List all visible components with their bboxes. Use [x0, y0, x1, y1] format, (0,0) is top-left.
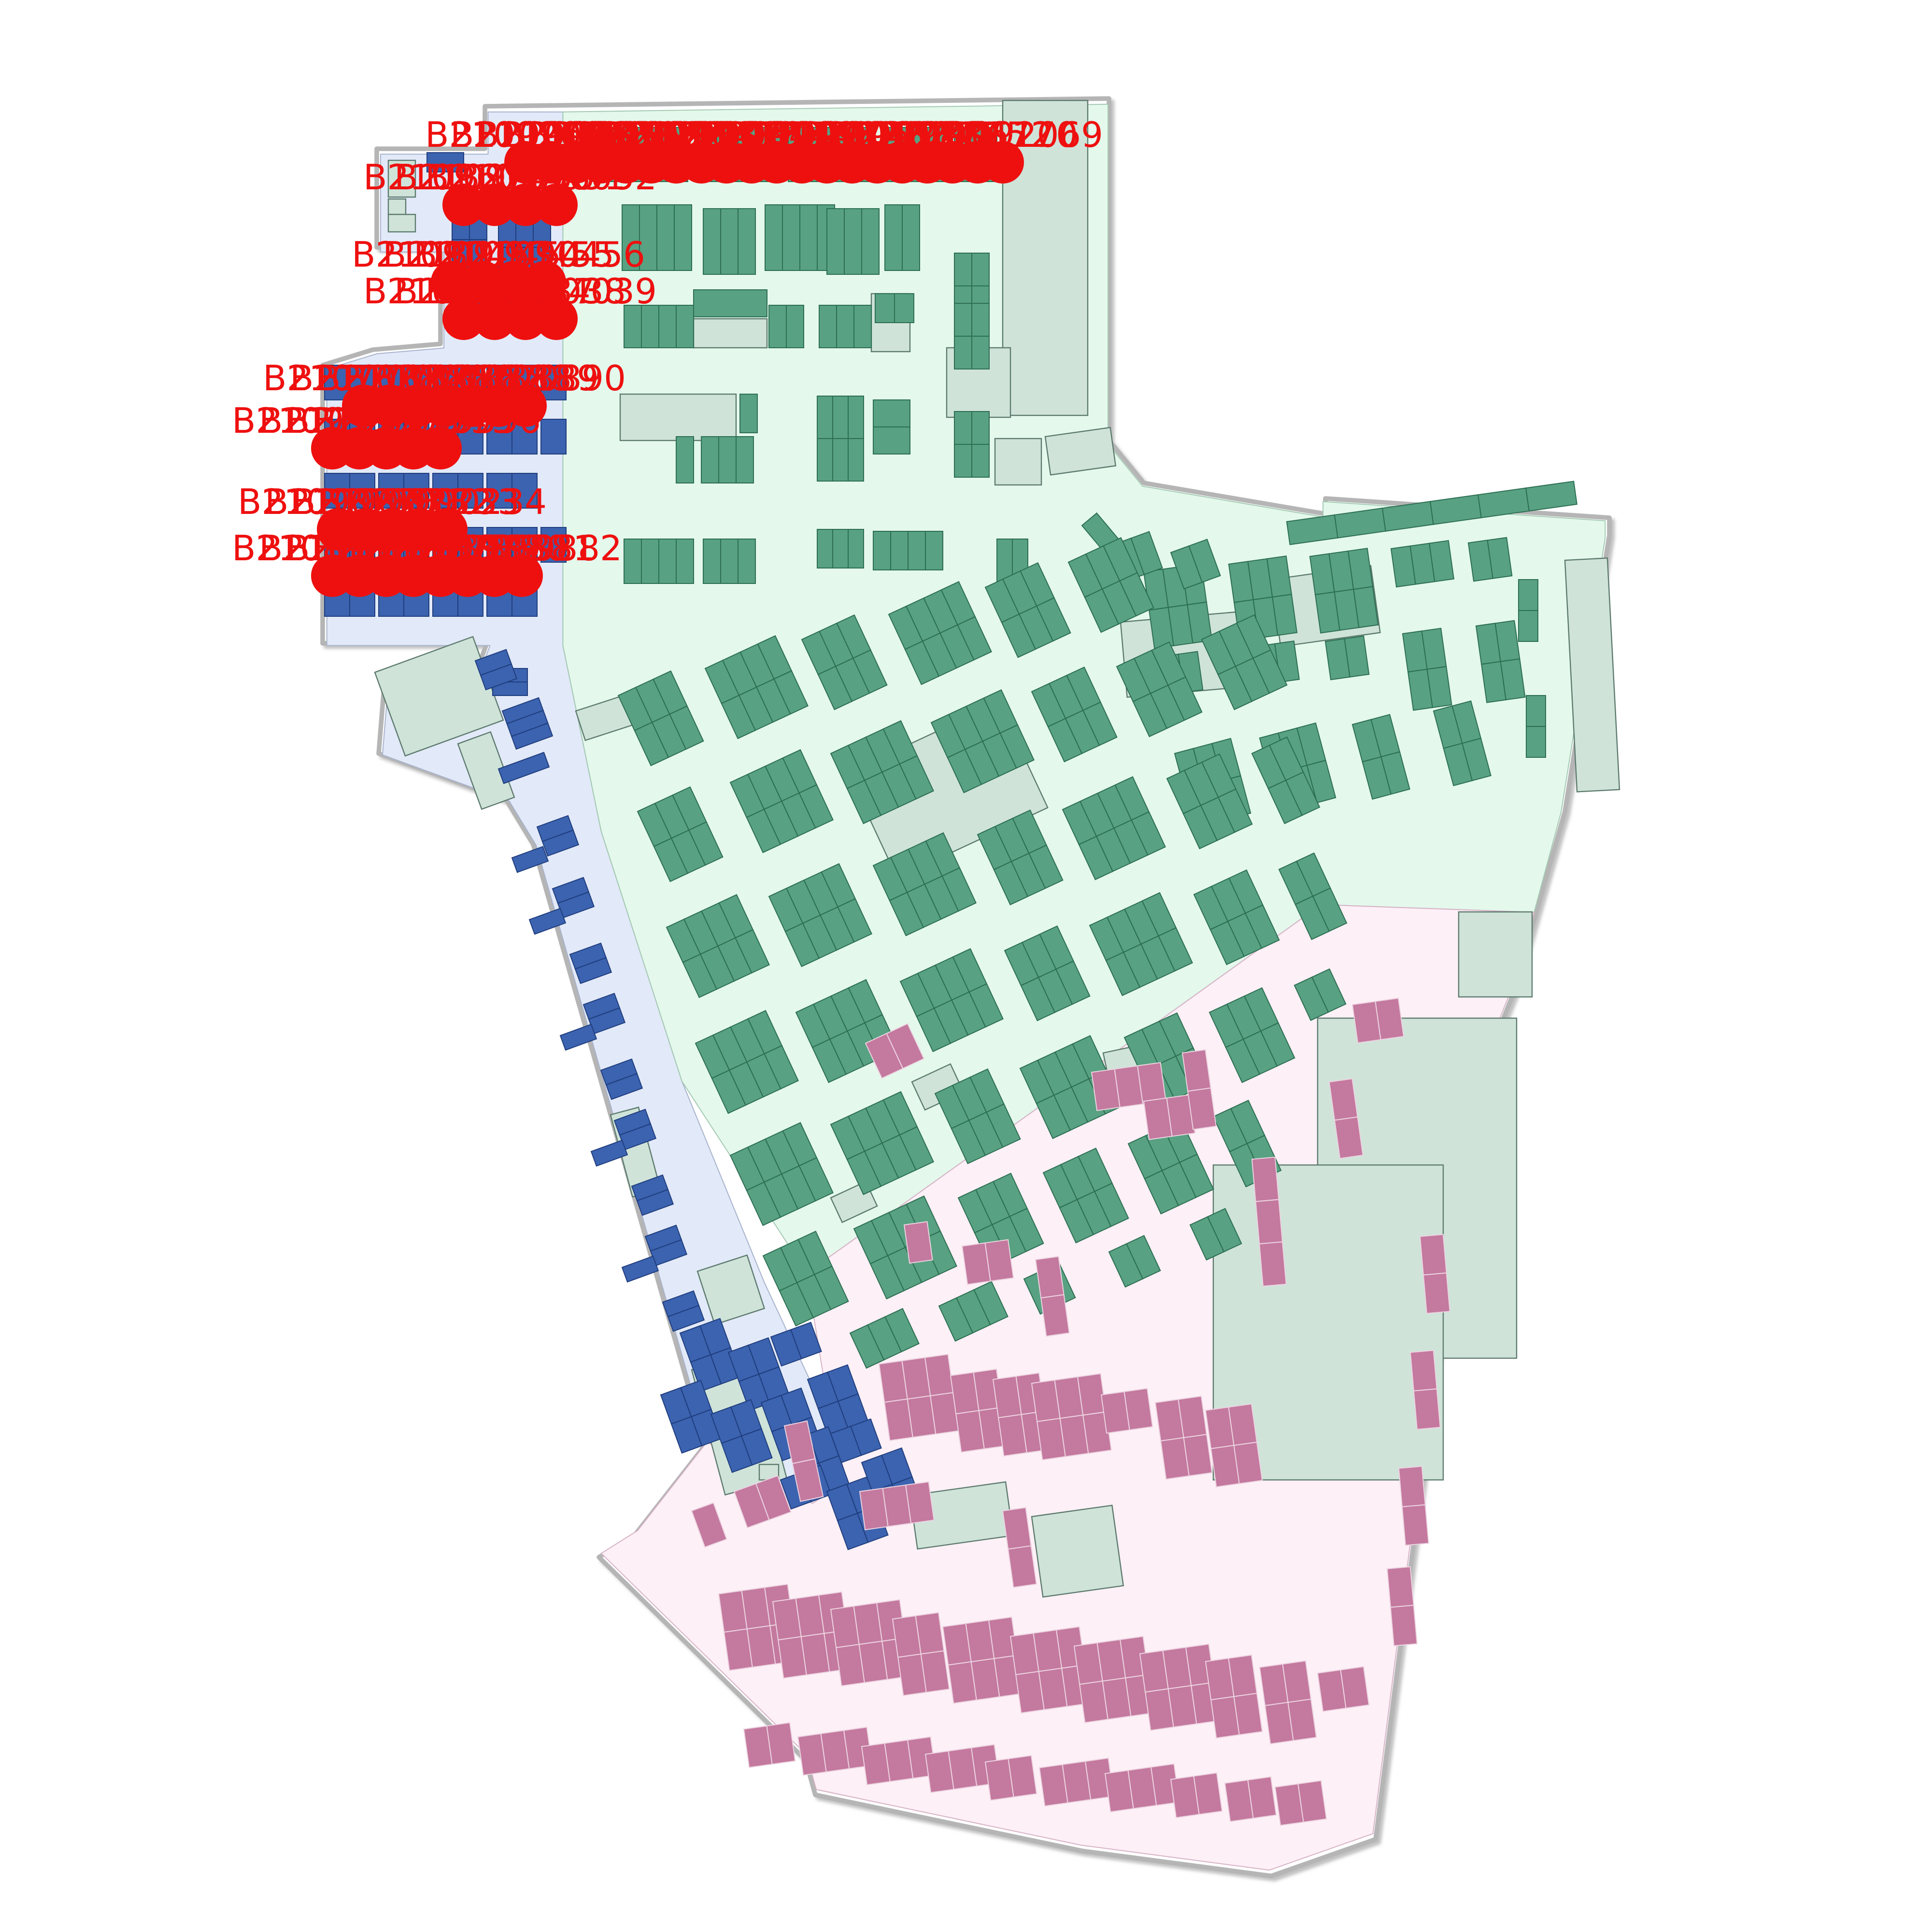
- stall-cluster-g: [875, 294, 914, 323]
- stall-cell: [925, 1354, 953, 1396]
- stall-cluster-g: [676, 437, 694, 483]
- stall-cell: [769, 305, 786, 348]
- stall-cell: [954, 336, 972, 369]
- stall-cell: [1519, 611, 1538, 641]
- stall-cluster-g: [769, 305, 804, 348]
- stall-cell: [624, 539, 641, 583]
- stall-cell: [1376, 998, 1404, 1040]
- stall-cell: [1387, 1567, 1414, 1607]
- stall-cell: [904, 1222, 933, 1263]
- stall-cell: [659, 539, 676, 583]
- stall-cell: [1229, 1655, 1257, 1697]
- stall-cell: [906, 1482, 934, 1523]
- stall-cell: [827, 209, 844, 274]
- stall-cell: [1182, 1050, 1211, 1091]
- stall-cell: [1399, 1466, 1425, 1507]
- stall-cell: [873, 531, 891, 570]
- stall-cell: [659, 305, 676, 348]
- stall-cell: [701, 437, 719, 483]
- stall-cell: [985, 1240, 1014, 1281]
- stall-marker-label: B21089882: [421, 528, 622, 568]
- stall-cell: [1298, 1781, 1327, 1822]
- building: [1045, 427, 1116, 475]
- stall-cell: [902, 205, 920, 270]
- stall-cell: [1229, 1404, 1257, 1446]
- stall-marker-label: B21070890: [425, 358, 626, 398]
- stall-cell: [1288, 1699, 1317, 1741]
- stall-cell: [921, 1651, 950, 1692]
- stall-cell: [817, 529, 833, 568]
- stall-cell: [848, 529, 864, 568]
- stall-cell: [676, 437, 694, 483]
- stall-cell: [1526, 481, 1577, 511]
- stall-cell: [765, 205, 782, 270]
- stall-marker-label: B21090234: [346, 482, 547, 522]
- stall-cluster-g: [624, 305, 694, 348]
- stall-cell: [719, 437, 736, 483]
- stall-marker-label: B21044039: [456, 271, 657, 312]
- stall-cell: [972, 336, 989, 369]
- stall-cell: [1256, 1199, 1282, 1244]
- stall-cell: [1420, 1235, 1447, 1275]
- stall-cluster-g: [817, 396, 864, 481]
- stall-cell: [972, 444, 989, 477]
- stall-cluster-b: [622, 1256, 658, 1282]
- stall-cell: [854, 305, 871, 348]
- stall-cell: [641, 539, 659, 583]
- stall-cluster-g: [703, 539, 755, 583]
- stall-marker-label: B21096052: [456, 157, 657, 198]
- stall-cluster-m: [1032, 1374, 1111, 1460]
- stall-cell: [1036, 1256, 1064, 1298]
- site-map-canvas: B21092007B21096013B21090821B21093307B210…: [0, 0, 1932, 1932]
- stall-cell: [908, 531, 925, 570]
- stall-cluster-g: [827, 209, 879, 274]
- stall-cell: [703, 539, 721, 583]
- stall-cell: [1402, 1505, 1429, 1546]
- stall-cell: [848, 396, 864, 439]
- stall-cluster-m: [744, 1723, 795, 1768]
- stall-cell: [800, 205, 817, 270]
- stall-cluster-g: [954, 303, 989, 369]
- stall-cell: [844, 209, 862, 274]
- stall-cell: [674, 205, 692, 270]
- stall-cluster-g: [1526, 696, 1546, 757]
- stall-cell: [782, 205, 800, 270]
- stall-cell: [1335, 1117, 1363, 1159]
- stall-cell: [1341, 1667, 1369, 1708]
- stall-cell: [833, 396, 848, 439]
- stall-cell: [1259, 1242, 1286, 1286]
- stall-cell: [873, 427, 910, 454]
- stall-cluster-g: [701, 437, 753, 483]
- stall-cluster-g: [819, 305, 871, 348]
- stall-cluster-m: [1074, 1636, 1154, 1722]
- stall-cell: [1179, 1396, 1207, 1438]
- stall-cell: [738, 209, 755, 274]
- stall-cell: [891, 531, 908, 570]
- stall-cell: [721, 539, 738, 583]
- stall-cell: [1124, 1389, 1153, 1430]
- stall-cell: [738, 539, 755, 583]
- stall-cell: [875, 294, 895, 323]
- stall-cell: [817, 439, 833, 481]
- stall-cell: [972, 303, 989, 336]
- stall-cell: [916, 1613, 944, 1654]
- stall-marker-label: B21090456: [444, 234, 645, 275]
- stall-cluster-m: [985, 1756, 1037, 1801]
- stall-cell: [703, 209, 721, 274]
- stall-cell: [694, 290, 767, 317]
- building: [388, 214, 415, 232]
- stall-cluster-g: [1519, 580, 1538, 641]
- stall-cell: [1414, 1389, 1440, 1430]
- stall-cluster-g: [873, 531, 943, 570]
- stall-cluster-g: [694, 290, 767, 317]
- stall-cell: [676, 539, 694, 583]
- stall-cluster-m: [962, 1240, 1013, 1285]
- stall-cell: [819, 305, 837, 348]
- stall-cell: [954, 412, 972, 444]
- stall-cell: [817, 396, 833, 439]
- stall-cell: [736, 437, 753, 483]
- stall-cell: [1391, 1605, 1417, 1646]
- stall-cell: [622, 1256, 658, 1282]
- building: [1459, 912, 1532, 997]
- stall-cell: [786, 305, 804, 348]
- stall-cell: [954, 253, 972, 286]
- stall-cell: [541, 419, 566, 454]
- stall-cell: [1234, 1442, 1263, 1484]
- building: [1032, 1506, 1123, 1597]
- building: [995, 439, 1041, 485]
- stall-cluster-m: [1352, 998, 1404, 1043]
- stall-cell: [624, 305, 641, 348]
- stall-cell: [1526, 696, 1546, 726]
- stall-cell: [1009, 1756, 1037, 1797]
- stall-cluster-g: [1325, 636, 1369, 680]
- stall-cell: [925, 531, 943, 570]
- stall-cell: [767, 1723, 796, 1764]
- stall-cluster-m: [1101, 1389, 1152, 1434]
- stall-cluster-m: [879, 1354, 959, 1440]
- stall-cell: [1188, 1088, 1216, 1130]
- stall-cell: [885, 205, 902, 270]
- stall-cell: [954, 444, 972, 477]
- stall-cluster-g: [1391, 540, 1454, 587]
- stall-cluster-m: [1225, 1777, 1276, 1822]
- stall-cell: [1008, 1546, 1037, 1588]
- stall-cell: [954, 303, 972, 336]
- building: [694, 319, 767, 348]
- stall-cluster-g: [1468, 538, 1512, 581]
- site-map: B21092007B21096013B21090821B21093307B210…: [0, 0, 1932, 1932]
- stall-cluster-m: [1318, 1667, 1369, 1712]
- stall-cell: [1003, 1507, 1031, 1549]
- stall-cell: [1194, 1773, 1222, 1815]
- stall-cluster-m: [943, 1617, 1023, 1703]
- stall-cell: [873, 400, 910, 427]
- stall-marker-label: B21092069: [902, 114, 1103, 155]
- stall-cluster-g: [1310, 548, 1378, 633]
- stall-cell: [833, 439, 848, 481]
- stall-cluster-g: [873, 400, 910, 454]
- stall-cluster-g: [817, 529, 864, 568]
- stall-cell: [641, 305, 659, 348]
- stall-cluster-g: [885, 205, 920, 270]
- stall-cell: [740, 394, 757, 433]
- stall-cell: [972, 253, 989, 286]
- stall-cell: [1184, 1435, 1212, 1476]
- stall-cell: [848, 439, 864, 481]
- stall-cluster-g: [624, 539, 694, 583]
- building: [388, 199, 406, 214]
- stall-cluster-m: [1275, 1781, 1326, 1826]
- stall-cell: [972, 412, 989, 444]
- stall-cluster-g: [703, 209, 755, 274]
- stall-cell: [676, 305, 694, 348]
- stall-marker-label: B21099596: [340, 400, 541, 441]
- stall-cell: [862, 209, 879, 274]
- stall-cluster-b: [541, 419, 566, 454]
- stall-cell: [657, 205, 674, 270]
- stall-cell: [837, 305, 854, 348]
- stall-cell: [1329, 1079, 1358, 1120]
- stall-cell: [1423, 1273, 1450, 1314]
- stall-cell: [1248, 1777, 1277, 1818]
- stall-cluster-g: [765, 205, 835, 270]
- stall-cell: [1519, 580, 1538, 611]
- stall-cell: [833, 529, 848, 568]
- stall-cell: [1137, 1063, 1166, 1104]
- stall-cell: [895, 294, 914, 323]
- stall-cluster-m: [1171, 1773, 1222, 1818]
- stall-cluster-g: [954, 412, 989, 477]
- stall-cluster-m: [1144, 1095, 1195, 1140]
- stall-cell: [1526, 726, 1546, 757]
- stall-cluster-m: [1140, 1644, 1220, 1730]
- stall-cluster-m: [904, 1222, 933, 1263]
- stall-cell: [1283, 1661, 1311, 1703]
- stall-cell: [1410, 1350, 1437, 1391]
- stall-cluster-g: [740, 394, 757, 433]
- building: [620, 394, 736, 440]
- stall-cell: [1252, 1157, 1279, 1202]
- stall-cell: [721, 209, 738, 274]
- stall-cell: [1234, 1693, 1263, 1735]
- stall-cell: [1041, 1295, 1069, 1336]
